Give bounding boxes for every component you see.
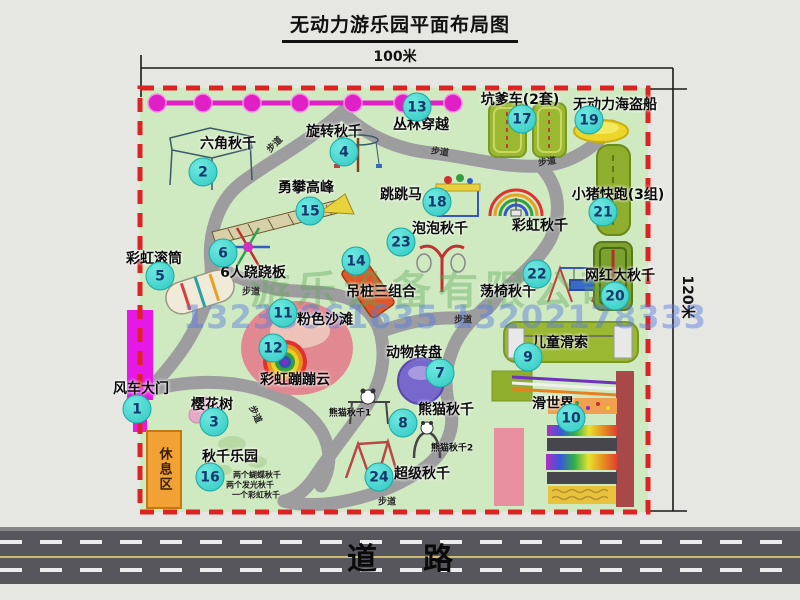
page-title: 无动力游乐园平面布局图: [282, 10, 518, 43]
watermark-phone: 13233861635 13202178333: [183, 298, 707, 336]
animal-turntable-icon: [398, 358, 444, 404]
road: 道路: [0, 527, 800, 584]
piggy-run-icon: [597, 145, 630, 235]
rest-area: 休息区: [146, 430, 182, 509]
rest-area-label: 休息区: [155, 447, 174, 492]
pirate-ship-icon: [574, 120, 628, 142]
park-layout-plan: 无动力游乐园平面布局图 100米 120米 游乐设备有限公司 132338616…: [0, 0, 800, 600]
width-dimension-label: 100米: [373, 46, 416, 66]
road-label: 道路: [301, 534, 499, 578]
rainbow-bounce-cloud-icon: [263, 340, 307, 384]
